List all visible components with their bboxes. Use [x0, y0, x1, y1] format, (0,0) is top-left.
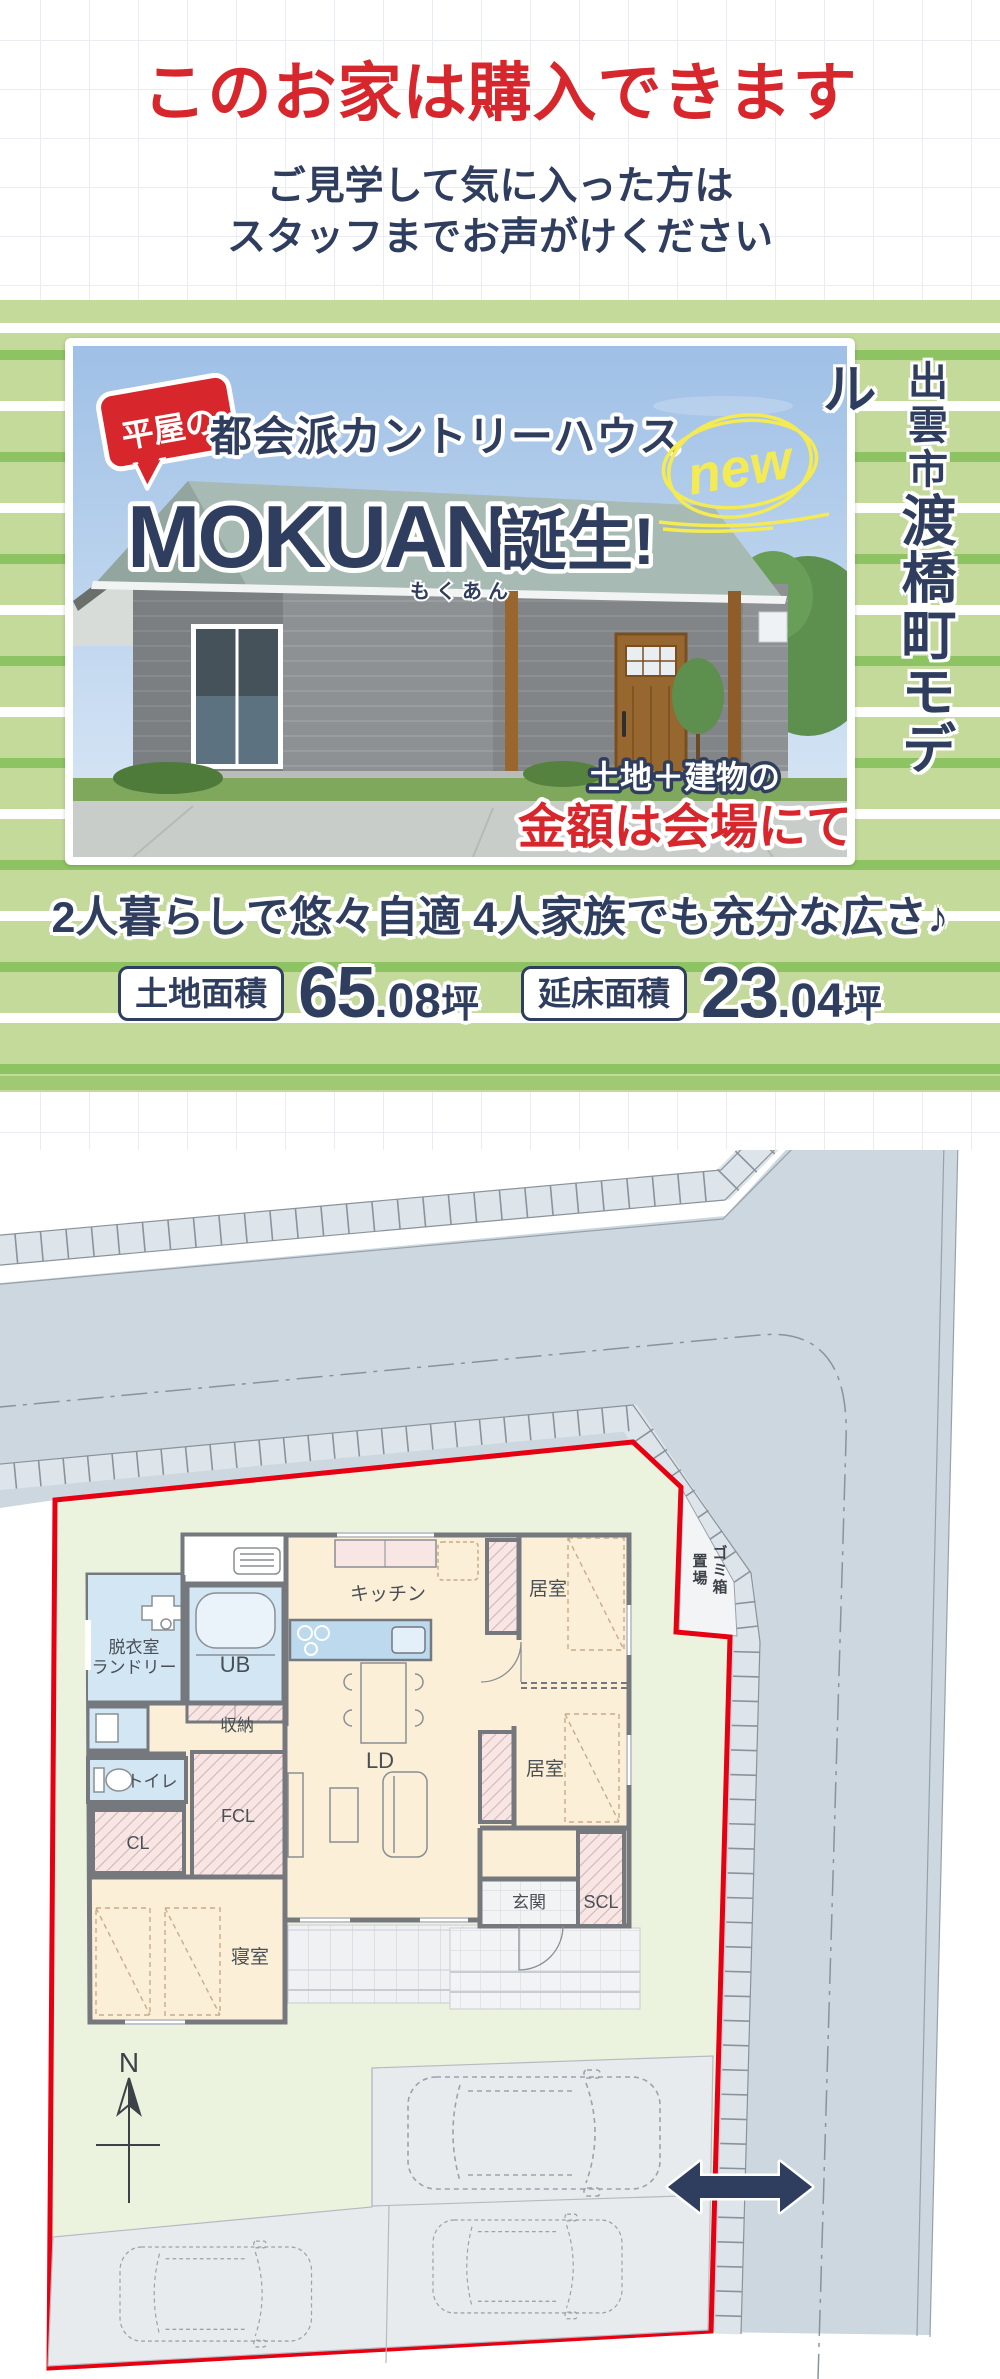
price-note-2: 金額は会場にて [517, 801, 847, 854]
room-label: ランドリー [92, 1658, 177, 1677]
land-area-label: 土地面積 [118, 966, 284, 1021]
land-area-value: 65.08坪 [298, 952, 479, 1034]
house-photo: 平屋の 都会派カントリーハウス MOKUAN 誕生! もくあん new 土地＋建… [73, 346, 847, 857]
flyer-page: このお家は購入できます ご見学して気に入った方は スタッフまでお声がけください [0, 0, 1000, 2379]
room-label: 居室 [526, 1758, 564, 1780]
louver-window [759, 612, 787, 642]
shrub [113, 762, 223, 794]
room-label: 脱衣室 [109, 1638, 160, 1657]
room-label: UB [220, 1652, 251, 1677]
room-label: CL [126, 1833, 149, 1853]
room-label: 居室 [529, 1578, 567, 1600]
series-title: 都会派カントリーハウス [209, 413, 682, 460]
entrance-porch [450, 1928, 640, 2009]
page-subtitle: ご見学して気に入った方は スタッフまでお声がけください [0, 162, 1000, 263]
room-label: 収納 [220, 1716, 254, 1735]
floor-area-value: 23.04坪 [701, 952, 882, 1034]
product-suffix: 誕生! [501, 504, 655, 578]
catch-copy: 2人暮らしで悠々自適 4人家族でも充分な広さ♪ [0, 883, 1000, 945]
front-window [191, 624, 283, 769]
svg-text:ミ: ミ [712, 1562, 727, 1579]
svg-text:ゴ: ゴ [712, 1544, 727, 1562]
wood-post [505, 591, 518, 779]
room-label: トイレ [127, 1772, 178, 1791]
subtitle-line-2: スタッフまでお声がけください [0, 213, 1000, 264]
hero-section: 平屋の 都会派カントリーハウス MOKUAN 誕生! もくあん new 土地＋建… [0, 300, 1000, 1092]
location-city: 出雲市 [902, 360, 946, 492]
grid-background-middle [0, 1092, 1000, 1150]
location-vertical-text: 出雲市渡橋町モデル [804, 360, 964, 820]
compass-label: N [119, 2047, 139, 2078]
hero-bottom-stripe [0, 1076, 1000, 1090]
floor-area-group: 延床面積 23.04坪 [521, 952, 882, 1034]
page-title: このお家は購入できます [0, 42, 1000, 134]
svg-text:置: 置 [692, 1553, 707, 1570]
room-label: キッチン [350, 1584, 426, 1605]
bathtub-icon [196, 1593, 275, 1648]
room-label: 寝室 [231, 1946, 269, 1968]
subtitle-line-1: ご見学して気に入った方は [0, 162, 1000, 213]
land-area-group: 土地面積 65.08坪 [118, 952, 479, 1034]
room-label: 玄関 [512, 1893, 546, 1912]
svg-text:箱: 箱 [712, 1578, 727, 1596]
floor-plan: 脱衣室 ランドリー UB 収納 キッチン 居室 居室 トイレ CL FCL LD… [88, 1533, 640, 2024]
site-plan: ゴ ミ 箱 置 場 [0, 1150, 1000, 2379]
room-label: FCL [221, 1806, 255, 1826]
furigana: もくあん [410, 580, 514, 603]
product-name: MOKUAN [127, 487, 505, 586]
hero-photo-card: 平屋の 都会派カントリーハウス MOKUAN 誕生! もくあん new 土地＋建… [65, 338, 855, 865]
floor-area-label: 延床面積 [521, 966, 687, 1021]
washer-icon [234, 1548, 280, 1574]
price-note-1: 土地＋建物の [588, 759, 780, 795]
sink-icon [392, 1627, 425, 1653]
svg-text:場: 場 [692, 1570, 707, 1587]
closet [480, 1732, 514, 1822]
room-label: LD [366, 1748, 394, 1773]
room-label: SCL [583, 1892, 618, 1912]
spec-row: 土地面積 65.08坪 延床面積 23.04坪 [0, 952, 1000, 1034]
wood-post [728, 591, 741, 779]
closet [487, 1540, 519, 1633]
